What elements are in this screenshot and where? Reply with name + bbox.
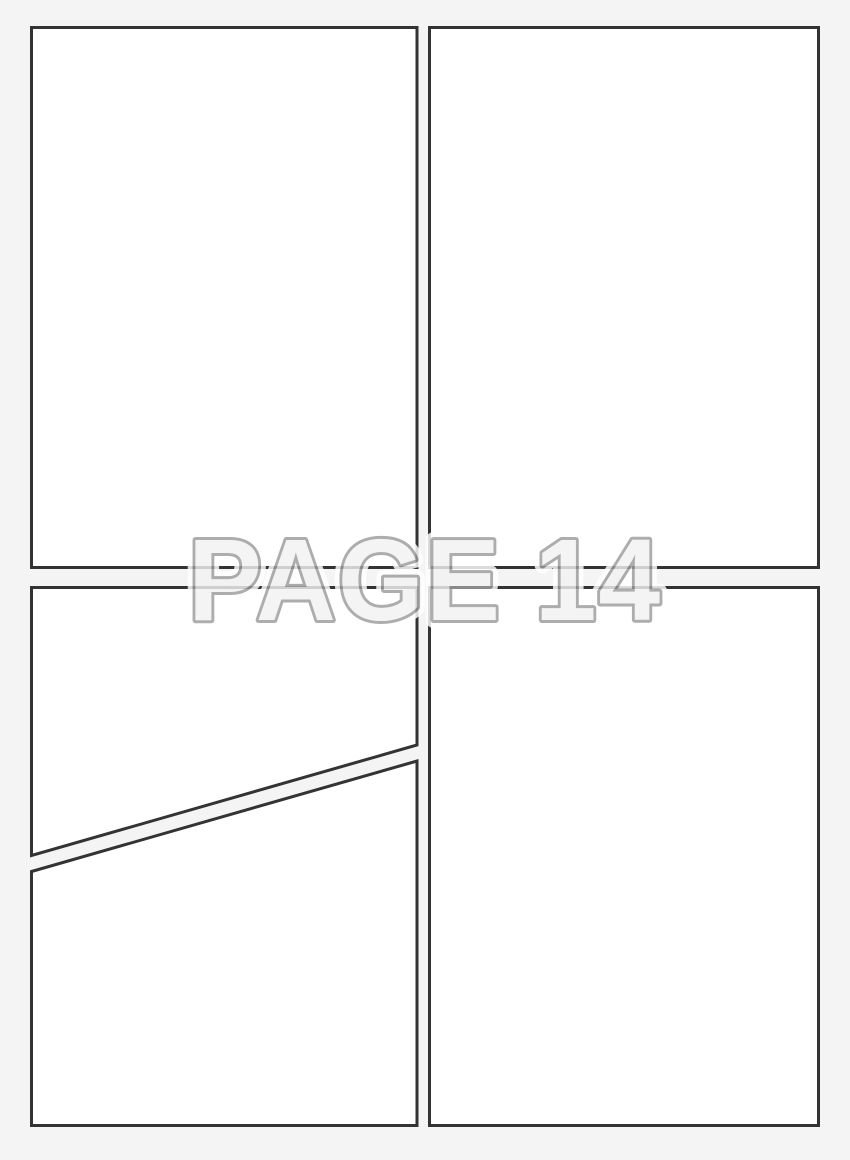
- comic-template-canvas: PAGE 14 PAGE 14: [0, 0, 850, 1160]
- panel-top-left: [32, 28, 418, 568]
- page-watermark-label: PAGE 14: [188, 515, 662, 645]
- page-watermark: PAGE 14 PAGE 14: [188, 515, 662, 645]
- panel-bottom-right: [430, 588, 819, 1126]
- comic-page-template: PAGE 14 PAGE 14: [0, 0, 850, 1160]
- panel-top-right: [430, 28, 819, 568]
